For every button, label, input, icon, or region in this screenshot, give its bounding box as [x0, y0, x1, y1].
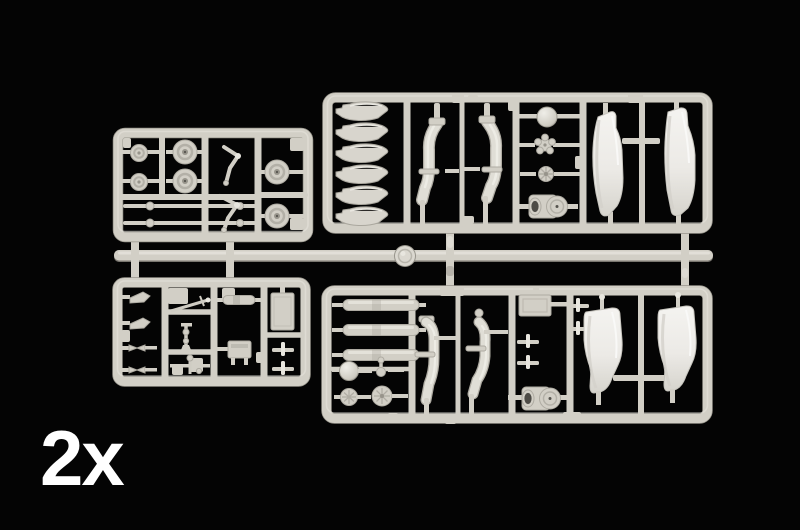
intake-duct-left [419, 103, 459, 226]
photo-stage: 2x [0, 0, 800, 530]
t-part [272, 342, 294, 356]
cross-rail [622, 138, 660, 144]
sprue-top-right [328, 94, 708, 229]
drum-part [508, 387, 570, 410]
sprue-bottom-left [118, 281, 306, 382]
wheel-small [131, 145, 148, 162]
tank-cylinders [332, 300, 426, 361]
wheel-medium [173, 169, 197, 193]
ball-part [537, 107, 557, 127]
quantity-label: 2x [40, 419, 123, 497]
wheel-medium [173, 140, 197, 164]
t-part [272, 361, 294, 375]
sprue-bottom-right [327, 287, 708, 424]
antenna-parts [170, 296, 211, 375]
t-part [517, 334, 539, 348]
fuselage-half-right [665, 101, 695, 226]
rosette-part [539, 167, 554, 182]
rotor-blades [336, 102, 388, 226]
intake-duct-right [464, 103, 502, 226]
plate-part [271, 286, 294, 330]
wheel-small [131, 174, 148, 191]
rotor-head-part [535, 134, 556, 154]
tail-half-right [658, 290, 696, 403]
spoked-disc [372, 386, 392, 406]
exhaust-duct-right [466, 309, 508, 416]
cross-rail [613, 375, 670, 381]
fuselage-half-left [593, 103, 623, 226]
runner-boss [394, 245, 416, 267]
round-parts-column [516, 107, 580, 218]
block-part [216, 341, 251, 365]
tail-half-left [584, 292, 622, 405]
wheel-right [265, 160, 289, 184]
spoked-disc [341, 389, 358, 406]
sprue-top-left [118, 132, 308, 238]
t-part [517, 355, 539, 369]
drum-part [516, 195, 578, 218]
ball-and-discs [332, 357, 408, 406]
